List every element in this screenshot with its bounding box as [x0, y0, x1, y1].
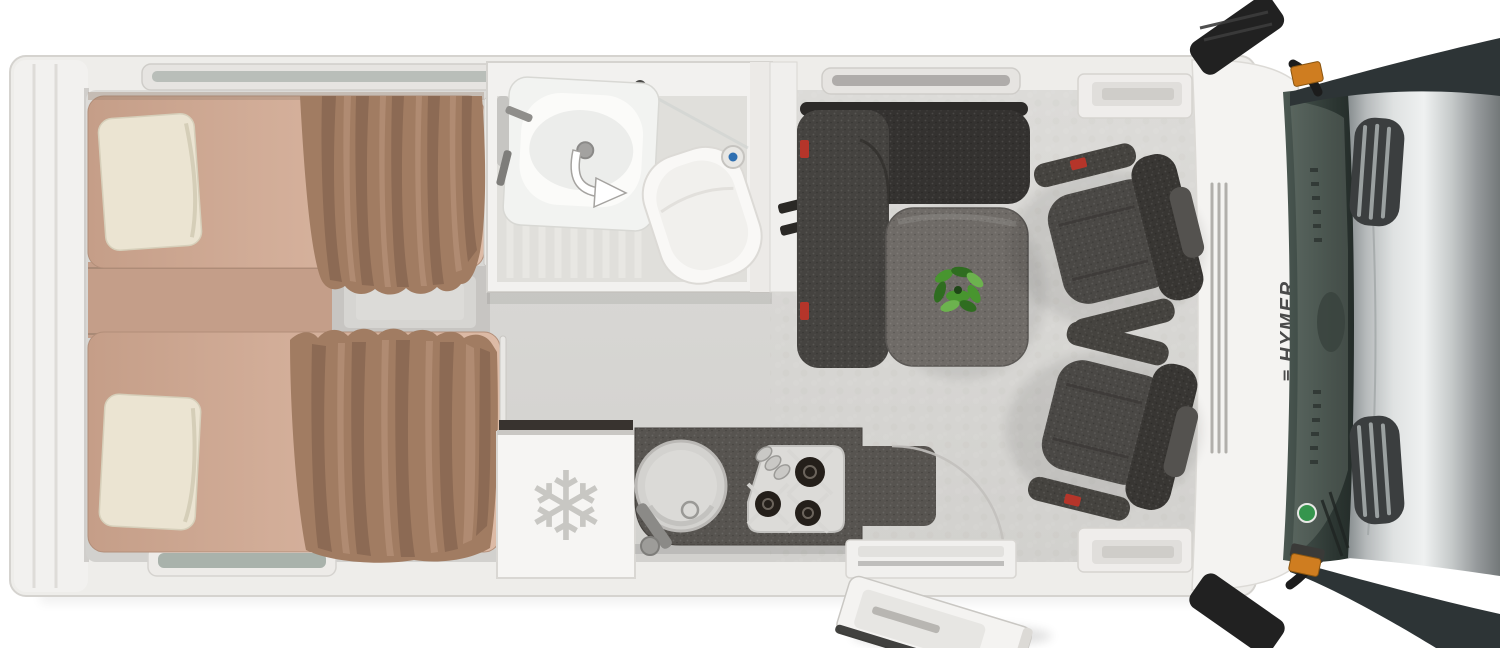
bed-middle-cushion	[88, 262, 332, 338]
vignette-sticker	[1298, 504, 1316, 522]
cab-door-step-top	[1078, 74, 1192, 118]
lounge-dinette	[777, 102, 1046, 380]
pillow-lower	[99, 394, 202, 531]
hood-vent-top	[1348, 116, 1405, 227]
burner	[795, 457, 825, 487]
burner	[755, 491, 781, 517]
burner	[795, 500, 821, 526]
rear-wall-panel	[14, 60, 89, 592]
seatbelt-buckle	[800, 140, 809, 158]
fridge: ❄	[497, 430, 635, 578]
pillow-upper	[98, 113, 203, 251]
curtain-upper-bed	[300, 96, 485, 295]
entry-step	[846, 540, 1016, 578]
curtain-lower-bed	[290, 329, 498, 563]
seatbelt-buckle	[800, 302, 809, 320]
window-top-lounge	[822, 68, 1020, 94]
snowflake-icon: ❄	[526, 451, 606, 563]
washroom-floor-shadow	[487, 292, 772, 304]
wardrobe-wall	[770, 62, 797, 292]
dashboard-speaker	[1317, 292, 1345, 352]
motorhome-floorplan: ❄	[0, 0, 1500, 648]
washroom	[487, 62, 772, 304]
hood-vent-bottom	[1348, 414, 1405, 525]
cab-door-step-bottom	[1078, 528, 1192, 572]
gas-hob	[748, 444, 844, 532]
floorplan-svg: ❄	[0, 0, 1500, 648]
